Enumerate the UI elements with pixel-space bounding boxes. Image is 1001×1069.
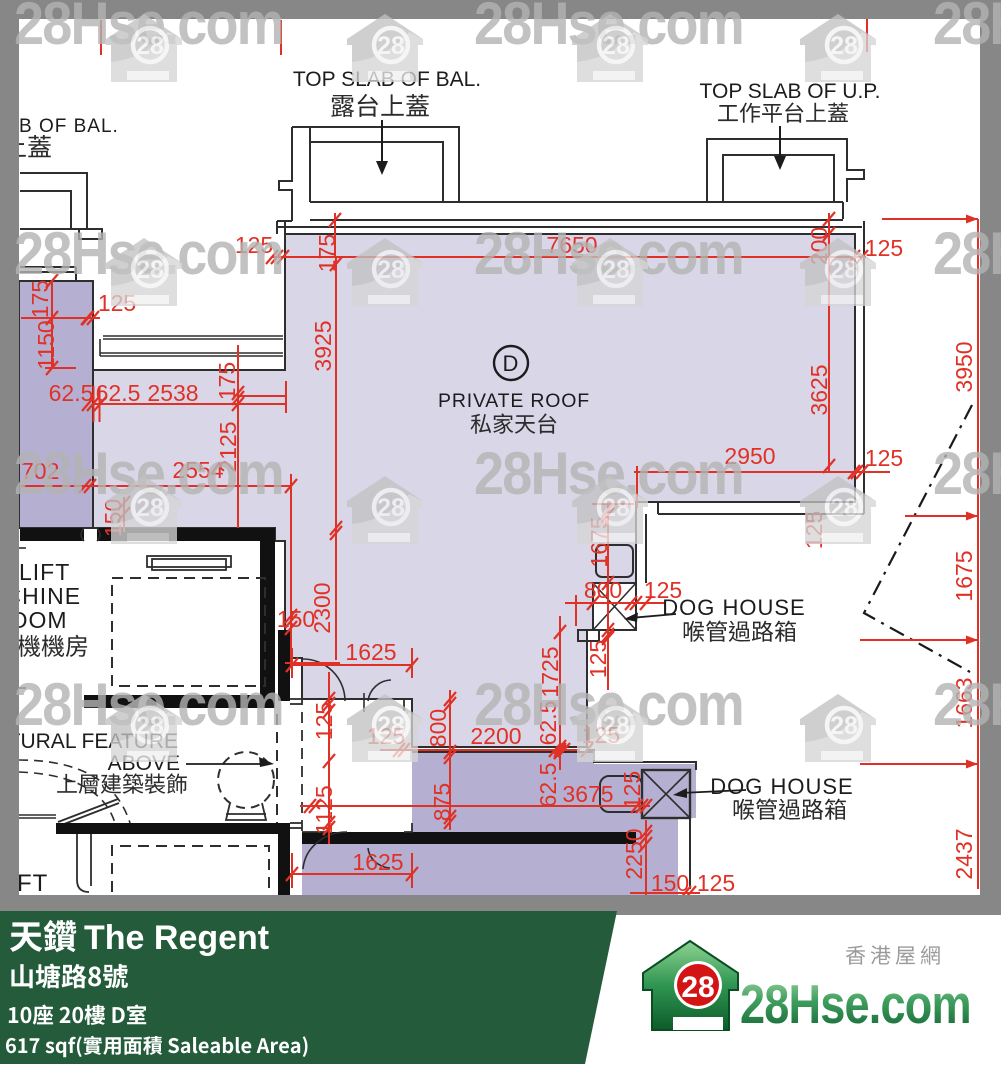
- svg-text:3950: 3950: [951, 341, 977, 392]
- svg-text:1625: 1625: [352, 849, 403, 875]
- svg-text:D: D: [503, 351, 520, 376]
- svg-text:125: 125: [311, 702, 337, 740]
- svg-text:875: 875: [429, 783, 455, 821]
- svg-text:3625: 3625: [806, 364, 832, 415]
- svg-text:DOG HOUSE: DOG HOUSE: [662, 595, 805, 620]
- svg-text:3675: 3675: [562, 781, 613, 807]
- svg-text:2250: 2250: [621, 828, 647, 879]
- svg-text:1675: 1675: [951, 550, 977, 601]
- svg-text:DOG HOUSE: DOG HOUSE: [710, 774, 853, 799]
- svg-text:125: 125: [865, 235, 903, 261]
- svg-text:125: 125: [619, 771, 645, 809]
- svg-text:1125: 1125: [311, 785, 337, 834]
- svg-text:TOP SLAB OF U.P.: TOP SLAB OF U.P.: [700, 80, 881, 103]
- svg-text:800: 800: [584, 577, 622, 603]
- svg-text:1625: 1625: [345, 639, 396, 665]
- svg-text:62.5: 62.5: [535, 763, 561, 808]
- svg-text:2538: 2538: [147, 380, 198, 406]
- svg-text:125: 125: [865, 445, 903, 471]
- svg-text:3925: 3925: [310, 320, 336, 371]
- svg-text:150: 150: [651, 870, 689, 896]
- svg-text:28Hse.com: 28Hse.com: [740, 973, 971, 1035]
- svg-text:175: 175: [214, 362, 240, 400]
- svg-text:28Hse.com: 28Hse.com: [933, 440, 1001, 507]
- svg-text:B OF BAL.: B OF BAL.: [19, 116, 119, 137]
- svg-text:2437: 2437: [951, 828, 977, 879]
- svg-text:62.5: 62.5: [96, 380, 141, 406]
- svg-text:28Hse.com: 28Hse.com: [933, 671, 1001, 738]
- svg-text:150: 150: [277, 606, 315, 632]
- svg-text:28: 28: [681, 971, 714, 1004]
- svg-text:800: 800: [425, 709, 451, 747]
- svg-text:PRIVATE ROOF: PRIVATE ROOF: [438, 390, 590, 412]
- svg-text:The Regent: The Regent: [84, 919, 269, 957]
- svg-text:62.5: 62.5: [49, 380, 94, 406]
- svg-text:125: 125: [697, 870, 735, 896]
- svg-text:1150: 1150: [33, 320, 59, 369]
- svg-text:28Hse.com: 28Hse.com: [933, 220, 1001, 287]
- svg-text:LIFT: LIFT: [19, 559, 70, 585]
- svg-text:28Hse.com: 28Hse.com: [933, 0, 1001, 58]
